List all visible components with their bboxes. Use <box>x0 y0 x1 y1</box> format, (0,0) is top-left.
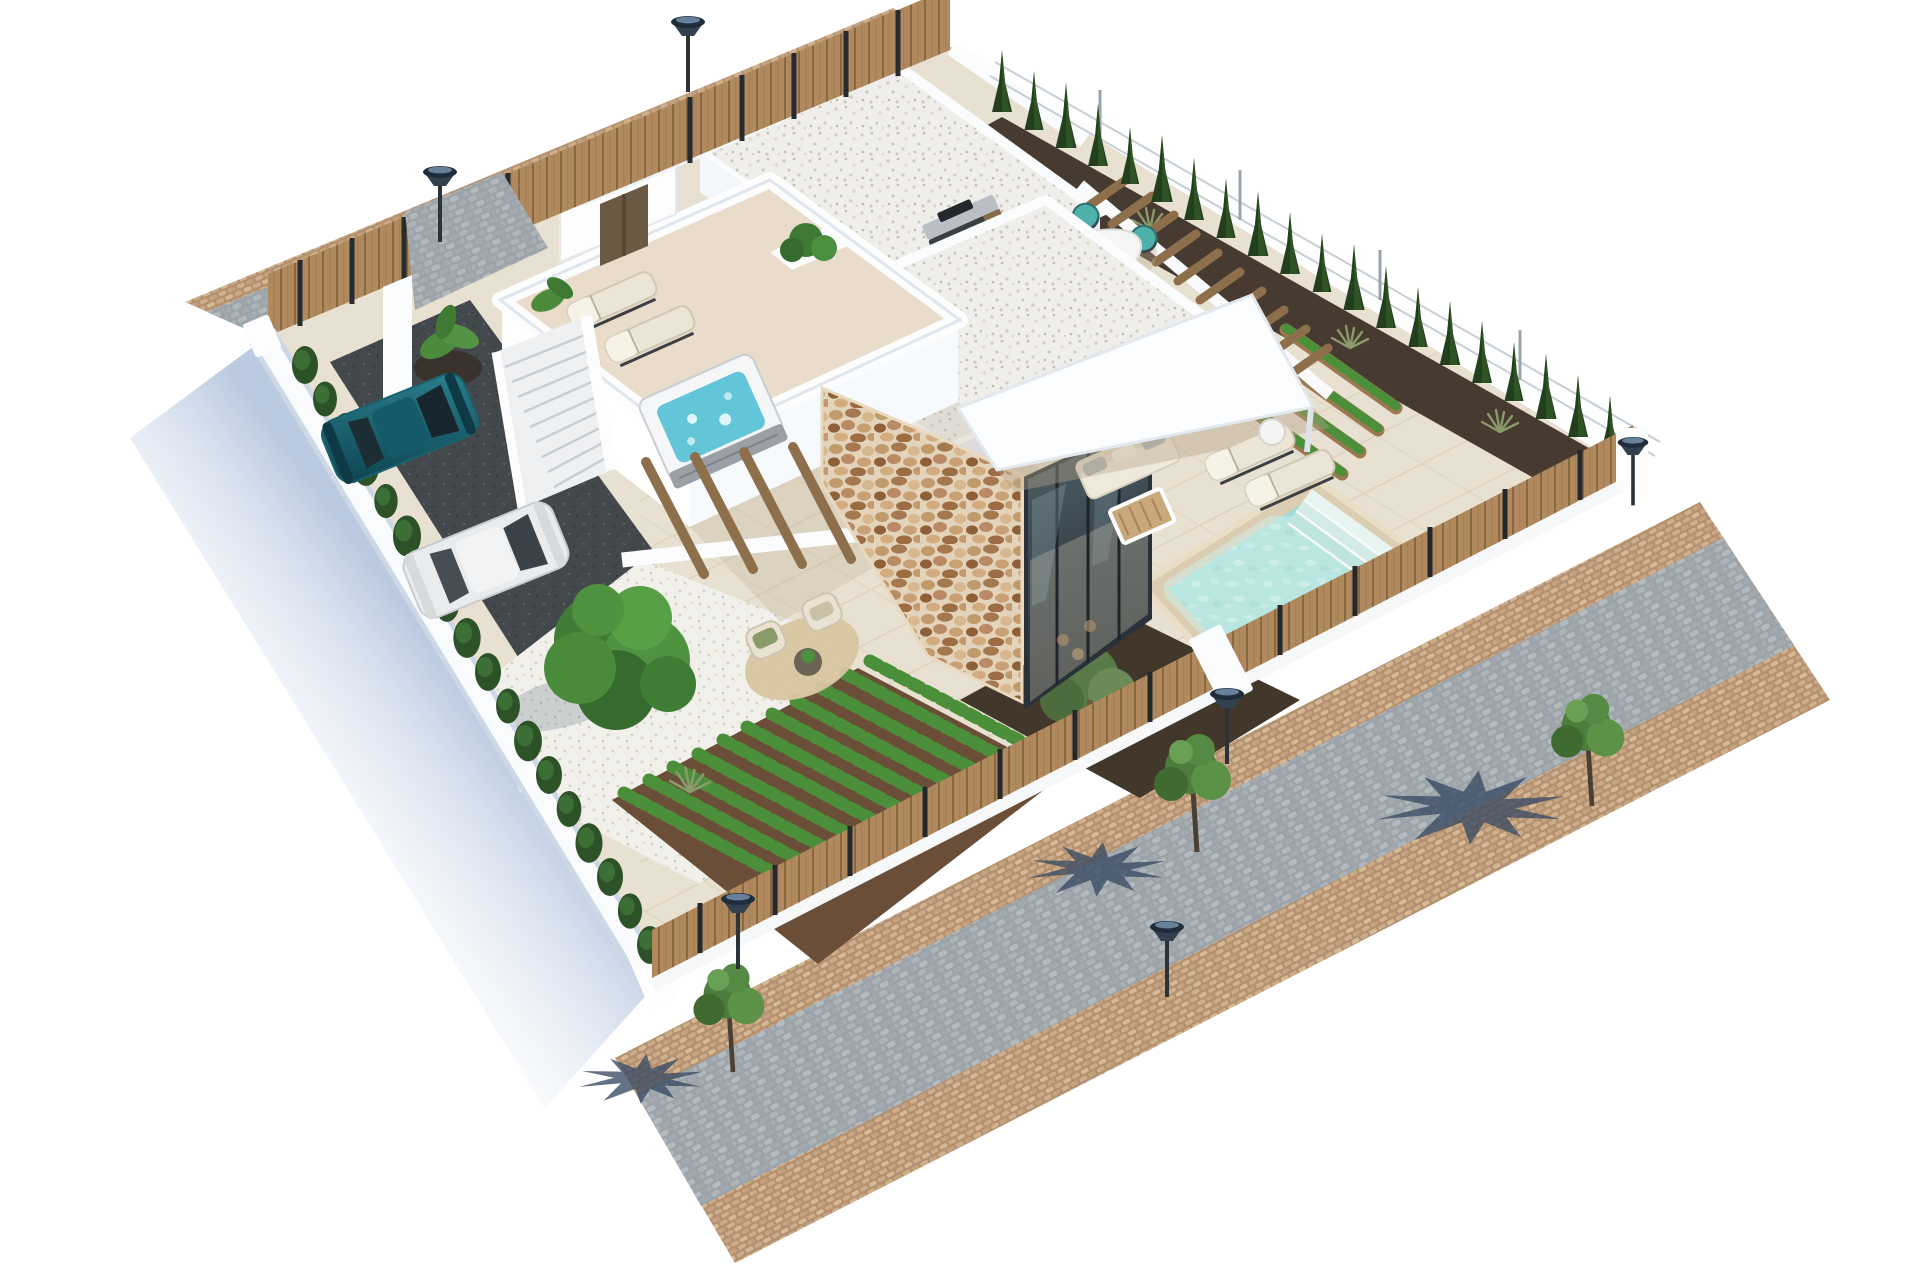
pool-side-table <box>1259 419 1285 445</box>
villa-site-render <box>0 0 1920 1280</box>
render-canvas <box>0 0 1920 1280</box>
